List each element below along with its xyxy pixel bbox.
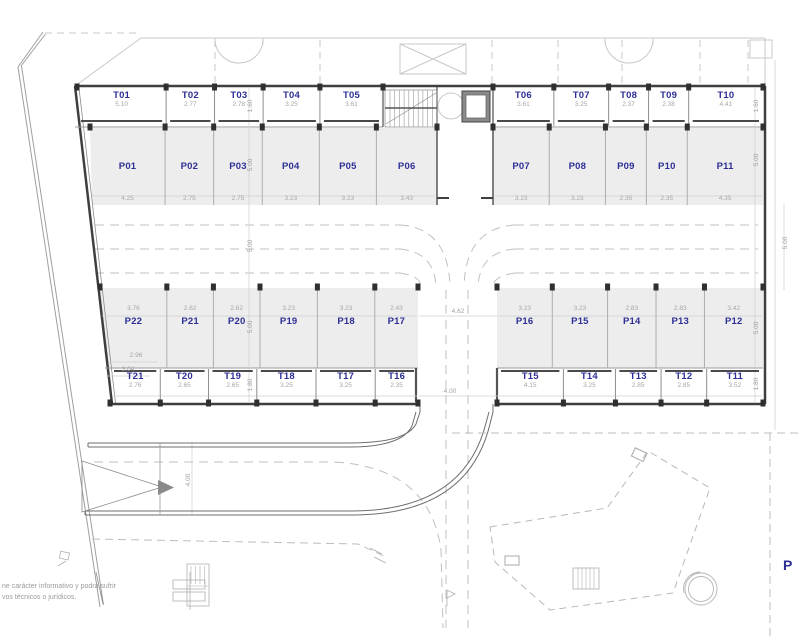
- stall-dimension-label: 3.25: [280, 382, 293, 389]
- parking-stall-P12[interactable]: 3.42P12: [704, 289, 763, 368]
- stall-id-label: T04: [283, 91, 300, 101]
- floor-plan: 1.605.005.005.001.801.605.005.001.805.00…: [0, 0, 800, 640]
- stall-dimension-label: 2.43: [390, 305, 403, 312]
- dimension-label: 5.00: [247, 239, 254, 252]
- stall-id-label: P09: [617, 162, 635, 172]
- stall-id-label: T21: [127, 372, 144, 382]
- storage-unit-T18[interactable]: T183.25: [257, 369, 316, 400]
- stall-dimension-label: 3.23: [574, 305, 587, 312]
- stall-id-label: P06: [398, 162, 416, 172]
- stall-dimension-label: 4.35: [687, 195, 763, 202]
- stall-id-label: T15: [522, 372, 539, 382]
- stall-dimension-label: 3.42: [727, 305, 740, 312]
- stall-dimension-label: 2.78: [232, 101, 245, 108]
- stall-id-label: P11: [717, 162, 734, 172]
- storage-unit-T21[interactable]: T212.76: [110, 369, 160, 400]
- parking-stall-P20[interactable]: 2.62P20: [213, 289, 260, 368]
- partial-p-label: P: [783, 557, 792, 573]
- parking-stall-P10[interactable]: P102.35: [646, 129, 687, 205]
- stall-id-label: T13: [630, 372, 647, 382]
- stall-dimension-label: 4.15: [524, 382, 537, 389]
- parking-stall-P19[interactable]: 3.23P19: [260, 289, 317, 368]
- stall-dimension-label: 2.83: [674, 305, 687, 312]
- stall-dimension-label: 2.65: [226, 382, 239, 389]
- stall-id-label: P07: [512, 162, 530, 172]
- stall-id-label: T18: [278, 372, 295, 382]
- stall-id-label: T16: [388, 372, 405, 382]
- storage-unit-T13[interactable]: T132.85: [615, 369, 661, 400]
- stall-id-label: T09: [660, 91, 677, 101]
- parking-stall-P03[interactable]: P032.75: [214, 129, 263, 205]
- parking-stall-P18[interactable]: 3.23P18: [317, 289, 374, 368]
- stall-id-label: P10: [658, 162, 676, 172]
- stall-dimension-label: 3.43: [376, 195, 437, 202]
- tree-icon: [684, 572, 717, 605]
- parking-stall-P07[interactable]: P073.23: [493, 129, 549, 205]
- stall-id-label: T03: [230, 91, 247, 101]
- storage-unit-T10[interactable]: T104.41: [689, 89, 763, 126]
- dimension-label: 5.00: [782, 236, 789, 249]
- stall-dimension-label: 3.25: [339, 382, 352, 389]
- parking-stall-P11[interactable]: P114.35: [687, 129, 763, 205]
- stall-dimension-label: 2.75: [214, 195, 263, 202]
- stall-dimension-label: 2.35: [646, 195, 687, 202]
- storage-unit-T15[interactable]: T154.15: [497, 369, 563, 400]
- storage-unit-T17[interactable]: T173.25: [316, 369, 375, 400]
- stall-id-label: P18: [337, 317, 355, 327]
- stall-id-label: P05: [339, 162, 357, 172]
- stall-id-label: T19: [224, 372, 241, 382]
- stall-dimension-label: 2.62: [184, 305, 197, 312]
- parking-stall-P14[interactable]: 2.83P14: [608, 289, 656, 368]
- parking-stall-P05[interactable]: P053.23: [319, 129, 376, 205]
- steps-hatch: [187, 564, 599, 606]
- stall-id-label: T08: [620, 91, 637, 101]
- stall-dimension-label: 2.85: [678, 382, 691, 389]
- site-dashed-lines: [92, 433, 798, 636]
- disclaimer-text: ne carácter informativo y podrá sufrir v…: [2, 581, 232, 603]
- parking-stall-P09[interactable]: P092.35: [605, 129, 646, 205]
- dimension-label: 4.62: [452, 308, 465, 315]
- stall-id-label: P13: [671, 317, 689, 327]
- stall-dimension-label: 2.35: [390, 382, 403, 389]
- storage-unit-T12[interactable]: T122.85: [661, 369, 707, 400]
- stall-dimension-label: 3.23: [282, 305, 295, 312]
- dimension-label: 2.96: [112, 352, 160, 359]
- core-circle: [438, 93, 464, 119]
- elevator-icon: [462, 91, 490, 122]
- stall-dimension-label: 3.23: [319, 195, 376, 202]
- parking-stall-P16[interactable]: 3.23P16: [497, 289, 552, 368]
- dimension-label: 3.04: [104, 366, 152, 373]
- stall-dimension-label: 4.41: [720, 101, 733, 108]
- storage-unit-T08[interactable]: T082.37: [609, 89, 649, 126]
- stall-dimension-label: 3.61: [517, 101, 530, 108]
- stall-id-label: T01: [113, 91, 130, 101]
- stall-id-label: T11: [727, 372, 743, 382]
- stall-id-label: P14: [623, 317, 641, 327]
- stall-id-label: P03: [229, 162, 247, 172]
- stall-dimension-label: 2.85: [632, 382, 645, 389]
- stall-dimension-label: 2.77: [184, 101, 197, 108]
- stall-dimension-label: 2.83: [625, 305, 638, 312]
- parking-stall-P01[interactable]: P014.25: [90, 129, 165, 205]
- stall-id-label: P01: [119, 162, 137, 172]
- parking-stall-P17[interactable]: 2.43P17: [375, 289, 418, 368]
- stall-id-label: P08: [569, 162, 587, 172]
- storage-unit-T06[interactable]: T063.61: [493, 89, 554, 126]
- access-road: [85, 412, 493, 515]
- stall-dimension-label: 3.25: [285, 101, 298, 108]
- stall-id-label: P22: [125, 317, 143, 327]
- stall-id-label: T07: [573, 91, 590, 101]
- parking-stall-P15[interactable]: 3.23P15: [552, 289, 607, 368]
- bench-icons: [505, 448, 647, 565]
- disclaimer-line2: vos técnicos o jurídicos.: [2, 592, 232, 603]
- storage-unit-T19[interactable]: T192.65: [209, 369, 257, 400]
- stall-id-label: P16: [516, 317, 534, 327]
- stall-dimension-label: 3.23: [262, 195, 319, 202]
- stall-id-label: P21: [181, 317, 199, 327]
- stall-id-label: P19: [280, 317, 298, 327]
- stall-dimension-label: 2.76: [129, 382, 142, 389]
- stall-id-label: T06: [515, 91, 532, 101]
- stall-dimension-label: 2.75: [165, 195, 214, 202]
- storage-unit-T05[interactable]: T053.61: [320, 89, 383, 126]
- storage-unit-T09[interactable]: T092.38: [649, 89, 689, 126]
- stall-dimension-label: 3.52: [728, 382, 741, 389]
- stall-dimension-label: 2.62: [230, 305, 243, 312]
- playground-area: [490, 451, 710, 610]
- stall-id-label: T17: [337, 372, 354, 382]
- stall-id-label: P17: [388, 317, 406, 327]
- stall-dimension-label: 2.38: [662, 101, 675, 108]
- storage-unit-T07[interactable]: T073.25: [554, 89, 609, 126]
- parking-stall-P04[interactable]: P043.23: [262, 129, 319, 205]
- parking-stall-P06[interactable]: P063.43: [376, 129, 437, 205]
- stall-dimension-label: 3.23: [493, 195, 549, 202]
- storage-unit-T04[interactable]: T043.25: [263, 89, 320, 126]
- stall-id-label: P02: [181, 162, 199, 172]
- stall-id-label: T02: [182, 91, 199, 101]
- storage-unit-T02[interactable]: T022.77: [166, 89, 214, 126]
- stall-id-label: P04: [282, 162, 300, 172]
- dimension-label: 4.00: [185, 473, 192, 486]
- parking-stall-P08[interactable]: P083.23: [549, 129, 605, 205]
- parking-stall-P13[interactable]: 2.83P13: [656, 289, 704, 368]
- storage-unit-T16[interactable]: T162.35: [375, 369, 418, 400]
- parking-stall-P02[interactable]: P022.75: [165, 129, 214, 205]
- stall-id-label: P12: [725, 317, 743, 327]
- storage-unit-T11[interactable]: T113.52: [707, 369, 763, 400]
- storage-unit-T01[interactable]: T015.10: [77, 89, 166, 126]
- stall-dimension-label: 2.37: [622, 101, 635, 108]
- stall-dimension-label: 3.23: [340, 305, 353, 312]
- stall-dimension-label: 5.10: [115, 101, 128, 108]
- stall-id-label: P15: [571, 317, 589, 327]
- stall-dimension-label: 3.23: [549, 195, 605, 202]
- staircase-icon: [385, 90, 437, 127]
- stall-dimension-label: 3.25: [583, 382, 596, 389]
- stall-id-label: T14: [581, 372, 598, 382]
- stall-id-label: P20: [228, 317, 246, 327]
- stall-dimension-label: 3.25: [575, 101, 588, 108]
- stall-dimension-label: 3.23: [518, 305, 531, 312]
- dimension-label: 4.00: [444, 388, 457, 395]
- storage-unit-T20[interactable]: T202.65: [160, 369, 208, 400]
- stall-dimension-label: 3.76: [127, 305, 140, 312]
- stall-dimension-label: 2.35: [605, 195, 646, 202]
- stall-id-label: T05: [343, 91, 360, 101]
- stall-dimension-label: 3.61: [345, 101, 358, 108]
- storage-unit-T14[interactable]: T143.25: [563, 369, 615, 400]
- disclaimer-line1: ne carácter informativo y podrá sufrir: [2, 581, 232, 592]
- stall-id-label: T20: [176, 372, 193, 382]
- stall-id-label: T10: [717, 91, 734, 101]
- stall-dimension-label: 4.25: [90, 195, 165, 202]
- stall-dimension-label: 2.65: [178, 382, 191, 389]
- stall-id-label: T12: [675, 372, 692, 382]
- storage-unit-T03[interactable]: T032.78: [215, 89, 264, 126]
- parking-stall-P21[interactable]: 2.62P21: [167, 289, 214, 368]
